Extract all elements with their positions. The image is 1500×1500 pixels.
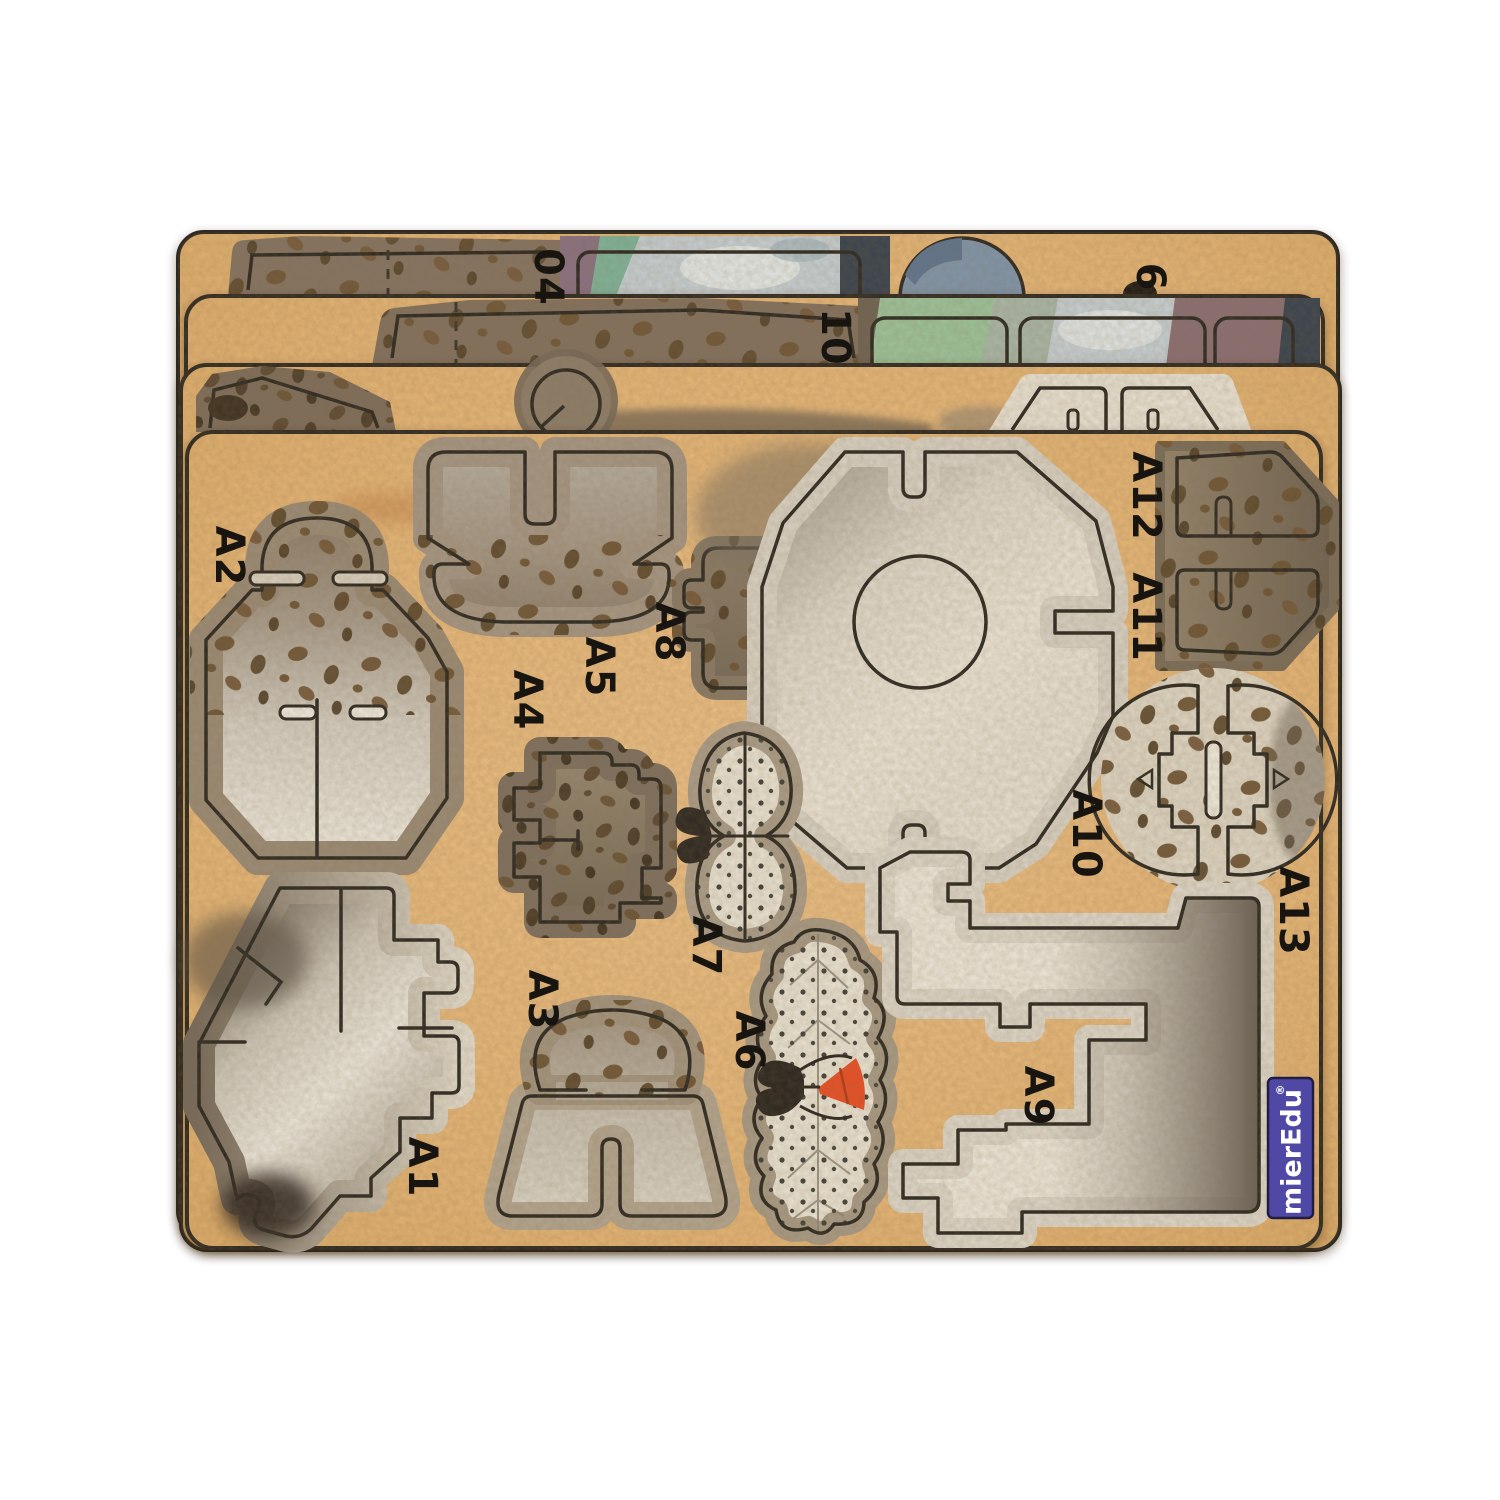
brand-logo-text: mierEdu [1276, 1089, 1307, 1215]
piece-label-a4: A4 [504, 670, 550, 731]
piece-label-a8: A8 [646, 602, 692, 663]
brand-logo: mierEdu ® [1268, 1078, 1313, 1218]
piece-label-a3: A3 [519, 970, 565, 1031]
piece-label-a12: A12 [1123, 451, 1169, 541]
product-photo: 04 6 10 A2 A5 A4 A8 A12 A11 A10 A13 A7 A… [0, 0, 1500, 1500]
sheet-1-number: 04 [525, 248, 571, 306]
sheet-2-number: 10 [812, 308, 858, 366]
piece-label-a10: A10 [1063, 789, 1109, 879]
piece-label-a13: A13 [1270, 866, 1316, 956]
piece-label-a1: A1 [399, 1137, 445, 1198]
piece-label-a7: A7 [683, 916, 729, 977]
piece-label-a9: A9 [1015, 1066, 1061, 1127]
puzzle-sheets-illustration: 04 6 10 A2 A5 A4 A8 A12 A11 A10 A13 A7 A… [0, 0, 1500, 1500]
piece-label-a6: A6 [726, 1011, 772, 1072]
paper-grain-texture [0, 0, 1500, 1500]
sheet-1-right-number: 6 [1127, 263, 1173, 292]
piece-label-a5: A5 [576, 637, 622, 698]
piece-label-a2: A2 [206, 526, 252, 587]
brand-registered-mark: ® [1274, 1085, 1287, 1096]
piece-label-a11: A11 [1123, 572, 1169, 662]
